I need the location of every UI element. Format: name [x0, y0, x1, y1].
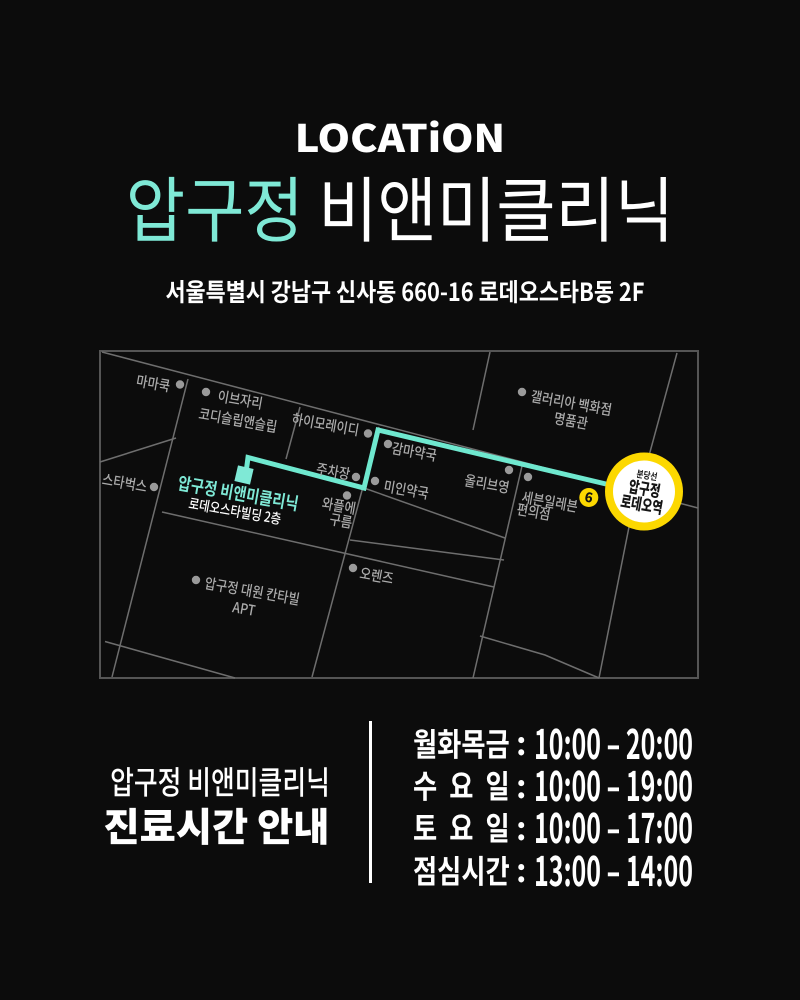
- svg-text:구름: 구름: [328, 507, 354, 532]
- svg-text:올리브영: 올리브영: [463, 468, 511, 497]
- svg-text:편의점: 편의점: [515, 497, 552, 524]
- svg-text:오렌즈: 오렌즈: [358, 561, 395, 588]
- svg-text:스타벅스: 스타벅스: [101, 467, 149, 496]
- svg-text:명품관: 명품관: [553, 406, 590, 433]
- svg-text:주차장: 주차장: [315, 457, 352, 484]
- svg-text:미인약국: 미인약국: [382, 474, 430, 503]
- svg-text:하이모레이디: 하이모레이디: [290, 407, 361, 440]
- svg-text:APT: APT: [231, 595, 257, 620]
- svg-text:마마쿡: 마마쿡: [135, 369, 172, 396]
